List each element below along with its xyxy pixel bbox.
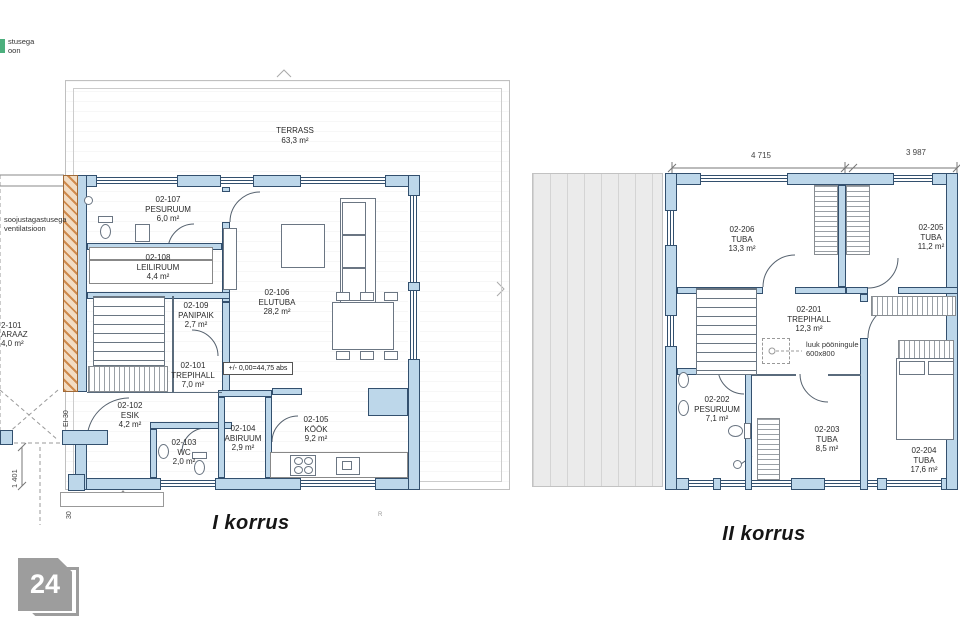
room-area: 7,0 m²: [171, 380, 215, 390]
window: [886, 478, 942, 490]
dimension-label: 1 401: [10, 446, 19, 488]
room-name: TREPIHALL: [787, 315, 831, 325]
stove-burner: [294, 457, 303, 465]
canopy-post: [68, 474, 85, 491]
logo-badge-24: 24: [18, 558, 72, 611]
room-name: PESURUUM: [694, 405, 740, 415]
room-id: 02-205: [918, 223, 945, 233]
stairs: [696, 288, 757, 375]
room-name: ELUTUBA: [259, 298, 296, 308]
room-name: ESIK: [118, 411, 143, 421]
interior-wall: [846, 287, 868, 294]
interior-wall: [272, 388, 302, 395]
toilet-icon: [100, 224, 111, 239]
wardrobe-hatch: [846, 185, 870, 255]
sink-icon: [678, 372, 689, 388]
room-label: 02-109 PANIPAIK 2,7 m²: [178, 301, 214, 330]
wardrobe-hatch: [88, 366, 168, 392]
stove-burner: [304, 466, 313, 474]
room-area: 13,3 m²: [728, 244, 755, 254]
terrace-name: TERRASS: [276, 126, 314, 136]
room-name: TUBA: [918, 233, 945, 243]
vent-note-line: soojustagastusega: [4, 215, 67, 224]
canopy-beam: [62, 430, 108, 445]
exterior-wall: [946, 173, 958, 490]
interior-partition: [87, 392, 222, 393]
canopy-beam: [0, 430, 13, 445]
room-name: TUBA: [815, 435, 840, 445]
attic-note: luuk pööningule 600x800: [806, 340, 859, 358]
room-area: 4,2 m²: [118, 420, 143, 430]
room-area: 28,2 m²: [259, 307, 296, 317]
wardrobe-hatch: [898, 340, 954, 360]
terrace-label: TERRASS 63,3 m²: [276, 126, 314, 145]
room-id: 02-104: [225, 424, 262, 434]
room-label: 02-105 KÖÖK 9,2 m²: [304, 415, 329, 444]
room-label: 02-106 ELUTUBA 28,2 m²: [259, 288, 296, 317]
room-id: 02-101: [171, 361, 215, 371]
room-name: TREPIHALL: [171, 371, 215, 381]
garage-label-line: 4,0 m²: [1, 339, 28, 348]
sofa-cushion: [342, 235, 366, 268]
attic-hatch-box: [762, 338, 790, 364]
chair: [384, 292, 398, 301]
room-label: 02-104 ABIRUUM 2,9 m²: [225, 424, 262, 453]
room-label: 02-201 TREPIHALL 12,3 m²: [787, 305, 831, 334]
wardrobe-hatch: [814, 185, 838, 255]
room-area: 2,9 m²: [225, 443, 262, 453]
room-label: 02-206 TUBA 13,3 m²: [728, 225, 755, 254]
window: [700, 173, 788, 185]
interior-wall: [860, 338, 868, 490]
terrace-area: 63,3 m²: [276, 136, 314, 146]
shower-icon: [733, 460, 742, 469]
room-id: 02-108: [137, 253, 180, 263]
room-label: 02-204 TUBA 17,6 m²: [910, 446, 937, 475]
vent-note: soojustagastusega ventilatsioon: [4, 215, 67, 233]
floor-drain-icon: [84, 196, 93, 205]
coffee-table: [281, 224, 325, 268]
room-id: 02-102: [118, 401, 143, 411]
interior-partition: [752, 374, 796, 376]
room-name: TUBA: [728, 235, 755, 245]
chair: [336, 351, 350, 360]
vent-icon: [0, 39, 5, 53]
room-label: 02-202 PESURUUM 7,1 m²: [694, 395, 740, 424]
room-area: 11,2 m²: [918, 242, 945, 252]
floor1-title: I korrus: [212, 512, 289, 535]
garage-label-line: 2-101: [1, 321, 28, 330]
toilet-icon: [728, 425, 743, 437]
chair: [384, 351, 398, 360]
room-id: 02-109: [178, 301, 214, 311]
room-area: 6,0 m²: [145, 214, 191, 224]
room-id: 02-202: [694, 395, 740, 405]
interior-wall: [150, 429, 157, 478]
room-area: 9,2 m²: [304, 434, 329, 444]
vent-note-line: ventilatsioon: [4, 224, 67, 233]
interior-wall: [218, 390, 272, 397]
window: [408, 290, 420, 360]
porch-steps: [60, 492, 164, 507]
garage-label-line: ARAAZ: [1, 330, 28, 339]
room-area: 12,3 m²: [787, 324, 831, 334]
chair: [336, 292, 350, 301]
window: [893, 173, 933, 185]
wardrobe-hatch: [757, 418, 780, 480]
floorplan-page: { "floor1": { "title": "I korrus", "terr…: [0, 0, 960, 640]
vent-note-top: stusega oon: [8, 37, 34, 55]
room-area: 2,0 m²: [172, 457, 197, 467]
chair: [360, 351, 374, 360]
room-id: 02-201: [787, 305, 831, 315]
attic-note-line: 600x800: [806, 349, 859, 358]
toilet-icon: [98, 216, 113, 223]
room-id: 02-107: [145, 195, 191, 205]
room-name: PESURUUM: [145, 205, 191, 215]
chair: [360, 292, 374, 301]
sauna-stove-icon: [135, 224, 150, 242]
room-area: 7,1 m²: [694, 414, 740, 424]
room-name: LEILIRUUM: [137, 263, 180, 273]
room-name: ABIRUUM: [225, 434, 262, 444]
floor1-plan: TERRASS 63,3 m² 02-107 PESURUUM 6,0 m² 0…: [0, 0, 520, 640]
window: [720, 478, 792, 490]
room-id: 02-105: [304, 415, 329, 425]
window: [824, 478, 878, 490]
attic-note-line: luuk pööningule: [806, 340, 859, 349]
room-area: 8,5 m²: [815, 444, 840, 454]
dimension-label: 4 715: [736, 151, 786, 160]
room-id: 02-204: [910, 446, 937, 456]
interior-wall: [222, 302, 230, 395]
interior-partition: [828, 374, 861, 376]
wardrobe-hatch: [871, 296, 956, 316]
stove-burner: [304, 457, 313, 465]
window: [96, 175, 178, 187]
room-area: 2,7 m²: [178, 320, 214, 330]
room-id: 02-103: [172, 438, 197, 448]
floor2-title: II korrus: [722, 523, 805, 546]
pillow: [899, 361, 925, 375]
interior-wall: [795, 287, 846, 294]
room-id: 02-206: [728, 225, 755, 235]
window: [665, 210, 677, 246]
dimension-label: 30: [66, 503, 73, 519]
vent-note-line: stusega: [8, 37, 34, 46]
room-id: 02-203: [815, 425, 840, 435]
room-area: 17,6 m²: [910, 465, 937, 475]
sink-icon: [158, 444, 169, 459]
room-name: WC: [172, 448, 197, 458]
tv-bench: [223, 228, 237, 290]
room-area: 4,4 m²: [137, 272, 180, 282]
sink-icon: [678, 400, 689, 416]
room-name: PANIPAIK: [178, 311, 214, 321]
level-mark: +/- 0,00=44,75 abs: [223, 362, 293, 375]
room-label: 02-107 PESURUUM 6,0 m²: [145, 195, 191, 224]
interior-wall: [898, 287, 958, 294]
dimension-label: 3 987: [893, 148, 939, 157]
interior-wall: [860, 294, 868, 302]
room-label: 02-101 TREPIHALL 7,0 m²: [171, 361, 215, 390]
stove-icon: [290, 455, 316, 476]
room-id: 02-106: [259, 288, 296, 298]
room-label: 02-203 TUBA 8,5 m²: [815, 425, 840, 454]
window: [408, 195, 420, 283]
corner-mark: R: [378, 512, 382, 518]
dining-table: [332, 302, 394, 350]
chimney-block: [368, 388, 408, 416]
interior-wall: [222, 187, 230, 192]
window: [300, 175, 386, 187]
room-label: 02-205 TUBA 11,2 m²: [918, 223, 945, 252]
room-name: KÖÖK: [304, 425, 329, 435]
stove-burner: [294, 466, 303, 474]
window: [220, 175, 254, 187]
fire-rating-label: EI-30: [63, 395, 70, 427]
window: [300, 478, 376, 490]
window: [665, 315, 677, 347]
firewall-hatch: [63, 175, 78, 392]
room-label: 02-102 ESIK 4,2 m²: [118, 401, 143, 430]
stairs: [93, 296, 165, 366]
room-name: TUBA: [910, 456, 937, 466]
sink-basin: [342, 461, 352, 470]
room-label: 02-103 WC 2,0 m²: [172, 438, 197, 467]
pillow: [928, 361, 954, 375]
deck-strip: [532, 173, 663, 487]
interior-wall: [838, 185, 846, 287]
garage-label: 2-101 ARAAZ 4,0 m²: [1, 321, 28, 348]
room-label: 02-108 LEILIRUUM 4,4 m²: [137, 253, 180, 282]
sofa-cushion: [342, 202, 366, 235]
window: [160, 478, 216, 490]
toilet-icon: [744, 423, 751, 439]
vent-note-line: oon: [8, 46, 34, 55]
window: [688, 478, 714, 490]
